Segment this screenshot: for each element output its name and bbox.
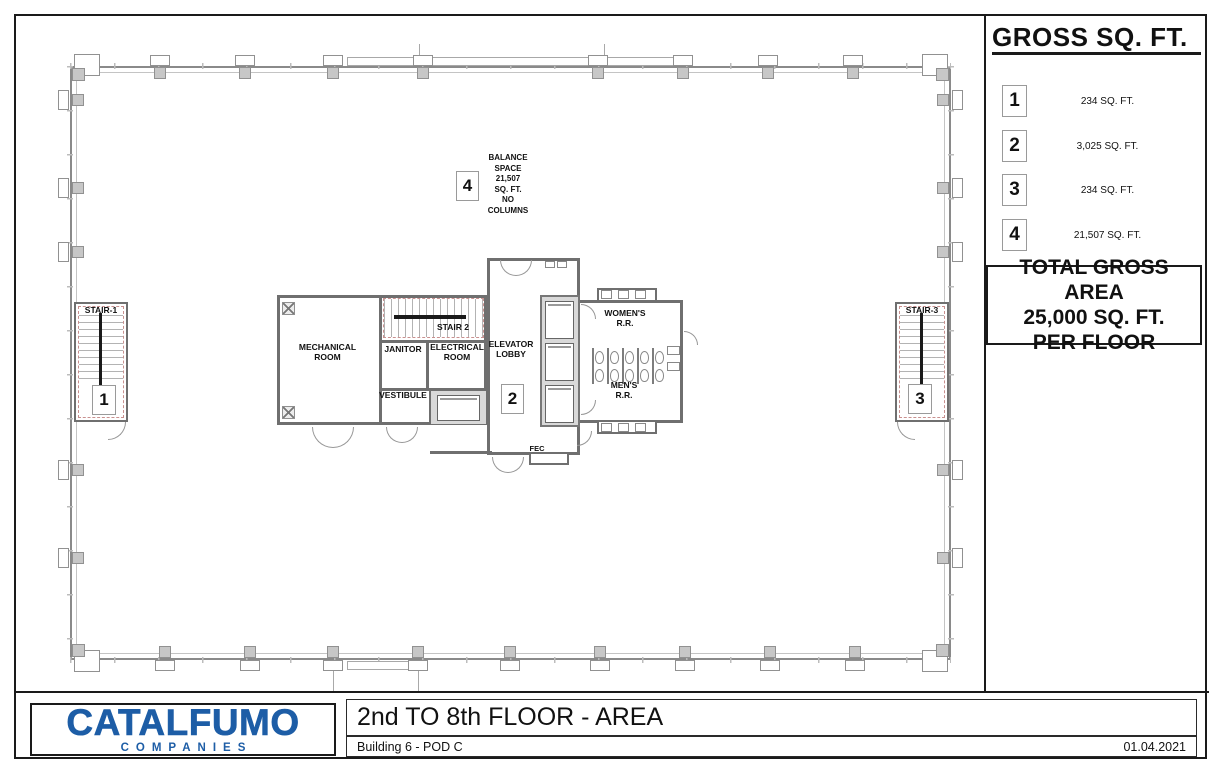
column xyxy=(952,548,963,568)
column xyxy=(159,646,171,658)
legend-item-number: 3 xyxy=(1002,174,1027,206)
column xyxy=(675,660,695,671)
total-gross-area-box: TOTAL GROSS AREA 25,000 SQ. FT. PER FLOO… xyxy=(986,265,1202,345)
column xyxy=(952,178,963,198)
legend-item-area: 234 SQ. FT. xyxy=(1027,96,1188,107)
service-elevator-car xyxy=(437,395,480,421)
drawing-date: 01.04.2021 xyxy=(1123,740,1186,754)
stall-partition xyxy=(592,348,594,384)
column xyxy=(764,646,776,658)
area-marker-3: 3 xyxy=(908,384,932,414)
stall-partition xyxy=(607,348,609,384)
column xyxy=(937,246,949,258)
column xyxy=(72,552,84,564)
column xyxy=(408,660,428,671)
column xyxy=(244,646,256,658)
wall xyxy=(430,451,492,454)
vestibule-label: VESTIBULE xyxy=(376,391,430,401)
stair1-rail xyxy=(99,313,102,385)
legend-underline xyxy=(992,52,1201,55)
logo-subname: COMPANIES xyxy=(114,742,253,754)
toilet xyxy=(625,351,634,364)
toilet xyxy=(595,351,604,364)
legend-item-number: 2 xyxy=(1002,130,1027,162)
column xyxy=(72,94,84,106)
toilet xyxy=(640,351,649,364)
canopy-band-top xyxy=(347,57,683,66)
fec-alcove xyxy=(529,452,569,465)
legend-item-area: 234 SQ. FT. xyxy=(1027,185,1188,196)
column xyxy=(72,246,84,258)
column xyxy=(937,552,949,564)
column xyxy=(417,67,429,79)
column xyxy=(758,55,778,66)
column xyxy=(843,55,863,66)
fountain-fixture xyxy=(545,261,555,268)
column xyxy=(500,660,520,671)
canopy-band-bottom xyxy=(347,661,413,670)
column xyxy=(150,55,170,66)
stall-partition xyxy=(652,348,654,384)
sink xyxy=(618,290,629,299)
wall-fixture xyxy=(667,346,680,355)
area-marker-1: 1 xyxy=(92,385,116,415)
wall-ticks-left xyxy=(67,66,73,660)
column xyxy=(937,94,949,106)
column xyxy=(58,178,69,198)
elevator-car xyxy=(545,343,574,381)
sink xyxy=(601,290,612,299)
column xyxy=(235,55,255,66)
column xyxy=(58,242,69,262)
company-logo: CATALFUMO COMPANIES xyxy=(30,703,336,756)
area-marker-4: 4 xyxy=(456,171,479,201)
column xyxy=(936,644,949,657)
column-x xyxy=(282,302,295,315)
mens-rr-label: MEN'S R.R. xyxy=(599,381,649,400)
column xyxy=(849,646,861,658)
stair2-rail xyxy=(394,315,466,319)
stair3-label: STAIR-3 xyxy=(900,306,944,316)
column xyxy=(952,460,963,480)
stair1-label: STAIR-1 xyxy=(79,306,123,316)
fec-label: FEC xyxy=(525,445,549,453)
drawing-title: 2nd TO 8th FLOOR - AREA xyxy=(357,703,663,732)
legend-title: GROSS SQ. FT. xyxy=(992,22,1202,53)
sink xyxy=(618,423,629,432)
mechanical-room-label: MECHANICAL ROOM xyxy=(285,343,370,362)
title-box-divider xyxy=(347,735,1196,737)
column xyxy=(952,242,963,262)
column-x xyxy=(282,406,295,419)
electrical-room-label: ELECTRICAL ROOM xyxy=(426,343,488,362)
fountain-fixture xyxy=(557,261,567,268)
column xyxy=(594,646,606,658)
drawing-title-box: 2nd TO 8th FLOOR - AREA Building 6 - POD… xyxy=(346,699,1197,757)
column xyxy=(239,67,251,79)
column xyxy=(323,55,343,66)
column xyxy=(679,646,691,658)
area-marker-2: 2 xyxy=(501,384,524,414)
elevator-lobby-label: ELEVATOR LOBBY xyxy=(487,340,535,359)
column xyxy=(323,660,343,671)
wall-fixture xyxy=(667,362,680,371)
column xyxy=(58,90,69,110)
column xyxy=(412,646,424,658)
column xyxy=(937,182,949,194)
legend-item-area: 3,025 SQ. FT. xyxy=(1027,141,1188,152)
column xyxy=(327,67,339,79)
legend-item: 2 3,025 SQ. FT. xyxy=(1002,131,1188,161)
column xyxy=(327,646,339,658)
drawing-sheet: STAIR-1 STAIR-3 STAIR 2 MECHANICAL ROOM … xyxy=(0,0,1223,775)
column xyxy=(413,55,433,66)
stair3-rail xyxy=(920,313,923,385)
logo-name: CATALFUMO xyxy=(66,706,299,740)
column xyxy=(72,182,84,194)
column xyxy=(504,646,516,658)
column xyxy=(154,67,166,79)
column xyxy=(673,55,693,66)
wall xyxy=(379,297,382,423)
column xyxy=(72,464,84,476)
column xyxy=(847,67,859,79)
legend-item: 4 21,507 SQ. FT. xyxy=(1002,220,1188,250)
legend-item-number: 1 xyxy=(1002,85,1027,117)
sink xyxy=(601,423,612,432)
stall-partition xyxy=(622,348,624,384)
column xyxy=(936,68,949,81)
elevator-car xyxy=(545,301,574,339)
column xyxy=(677,67,689,79)
balance-space-note: BALANCE SPACE 21,507 SQ. FT. NO COLUMNS xyxy=(478,153,538,216)
column xyxy=(937,464,949,476)
column xyxy=(240,660,260,671)
floor-plan: STAIR-1 STAIR-3 STAIR 2 MECHANICAL ROOM … xyxy=(0,0,1223,775)
column xyxy=(845,660,865,671)
column xyxy=(72,644,85,657)
toilet xyxy=(610,351,619,364)
womens-rr-label: WOMEN'S R.R. xyxy=(599,309,651,328)
drawing-subtitle: Building 6 - POD C xyxy=(357,740,463,754)
sink xyxy=(635,423,646,432)
column xyxy=(58,548,69,568)
stair2-label: STAIR 2 xyxy=(430,323,476,333)
column xyxy=(590,660,610,671)
column xyxy=(155,660,175,671)
column xyxy=(592,67,604,79)
toilet xyxy=(655,351,664,364)
legend-item-area: 21,507 SQ. FT. xyxy=(1027,230,1188,241)
legend-item-number: 4 xyxy=(1002,219,1027,251)
legend-item: 3 234 SQ. FT. xyxy=(1002,175,1188,205)
sink xyxy=(635,290,646,299)
elevator-car xyxy=(545,385,574,423)
column xyxy=(588,55,608,66)
stall-partition xyxy=(637,348,639,384)
janitor-label: JANITOR xyxy=(379,345,427,355)
column xyxy=(760,660,780,671)
column xyxy=(72,68,85,81)
column xyxy=(952,90,963,110)
toilet xyxy=(655,369,664,382)
legend-item: 1 234 SQ. FT. xyxy=(1002,86,1188,116)
column xyxy=(762,67,774,79)
column xyxy=(58,460,69,480)
